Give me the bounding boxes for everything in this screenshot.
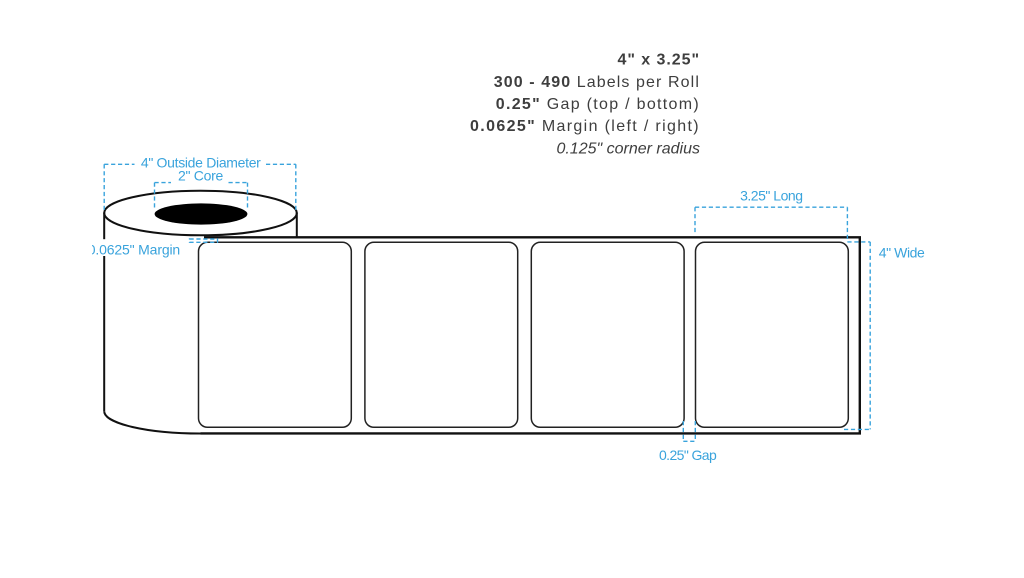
svg-text:3.25" Long: 3.25" Long [740,188,802,204]
svg-text:2" Core: 2" Core [178,168,223,184]
svg-text:0.25" Gap: 0.25" Gap [659,447,717,463]
svg-text:0.0625" Margin (left / right): 0.0625" Margin (left / right) [470,118,700,135]
svg-text:0.0625" Margin: 0.0625" Margin [88,241,180,257]
svg-text:0.125" corner radius: 0.125" corner radius [556,141,700,158]
svg-text:0.25" Gap (top / bottom): 0.25" Gap (top / bottom) [496,96,700,113]
svg-text:300 - 490 Labels per Roll: 300 - 490 Labels per Roll [494,74,700,91]
svg-text:4" Wide: 4" Wide [879,244,925,260]
svg-text:4" x 3.25": 4" x 3.25" [618,52,701,69]
